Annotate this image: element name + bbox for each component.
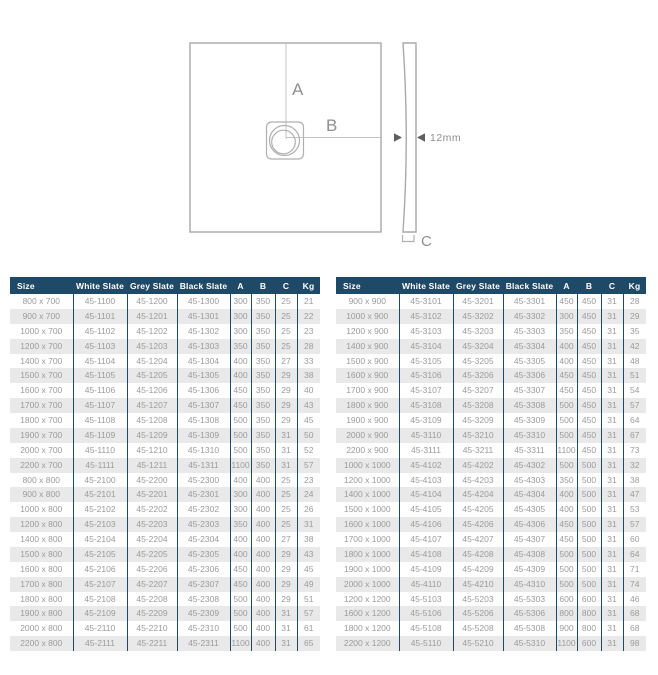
cell: 45-3302 bbox=[503, 309, 556, 324]
cell: 45-4207 bbox=[453, 532, 503, 547]
cell: 2000 x 1000 bbox=[336, 577, 399, 592]
cell: 1800 x 900 bbox=[336, 398, 399, 413]
cell: 500 bbox=[577, 517, 601, 532]
cell: 400 bbox=[556, 502, 577, 517]
cell: 1600 x 1200 bbox=[336, 606, 399, 621]
cell: 45-4203 bbox=[453, 473, 503, 488]
cell: 32 bbox=[623, 458, 646, 473]
cell: 45-1206 bbox=[127, 383, 177, 398]
cell: 45-5108 bbox=[399, 621, 453, 636]
cell: 45-1202 bbox=[127, 324, 177, 339]
cell: 68 bbox=[623, 606, 646, 621]
cell: 1600 x 700 bbox=[10, 383, 73, 398]
table-row: 900 x 80045-210145-220145-23013004002524 bbox=[10, 487, 320, 502]
table-row: 1600 x 90045-310645-320645-3306450450315… bbox=[336, 368, 646, 383]
cell: 450 bbox=[577, 383, 601, 398]
cell: 45-3110 bbox=[399, 428, 453, 443]
cell: 1600 x 800 bbox=[10, 562, 73, 577]
cell: 31 bbox=[275, 458, 297, 473]
cell: 25 bbox=[275, 517, 297, 532]
cell: 45-4105 bbox=[399, 502, 453, 517]
cell: 45-2203 bbox=[127, 517, 177, 532]
cell: 45-1108 bbox=[73, 413, 127, 428]
cell: 46 bbox=[623, 592, 646, 607]
cell: 45-3105 bbox=[399, 354, 453, 369]
cell: 45-1101 bbox=[73, 309, 127, 324]
cell: 450 bbox=[556, 383, 577, 398]
cell: 38 bbox=[623, 473, 646, 488]
cell: 74 bbox=[623, 577, 646, 592]
cell: 45-2100 bbox=[73, 473, 127, 488]
table-row: 1000 x 80045-210245-220245-2302300400252… bbox=[10, 502, 320, 517]
cell: 45-2111 bbox=[73, 636, 127, 651]
cell: 26 bbox=[297, 502, 320, 517]
cell: 45-3205 bbox=[453, 354, 503, 369]
cell: 400 bbox=[251, 577, 275, 592]
cell: 2200 x 900 bbox=[336, 443, 399, 458]
cell: 400 bbox=[230, 354, 251, 369]
cell: 45-1209 bbox=[127, 428, 177, 443]
cell: 29 bbox=[275, 577, 297, 592]
cell: 1100 bbox=[556, 443, 577, 458]
cell: 51 bbox=[297, 592, 320, 607]
cell: 450 bbox=[556, 517, 577, 532]
cell: 43 bbox=[297, 398, 320, 413]
cell: 45-4110 bbox=[399, 577, 453, 592]
cell: 1700 x 1000 bbox=[336, 532, 399, 547]
cell: 800 bbox=[577, 606, 601, 621]
cell: 45-1310 bbox=[177, 443, 230, 458]
cell: 31 bbox=[275, 606, 297, 621]
cell: 500 bbox=[577, 562, 601, 577]
cell: 1800 x 800 bbox=[10, 592, 73, 607]
cell: 22 bbox=[297, 309, 320, 324]
cell: 45-3109 bbox=[399, 413, 453, 428]
cell: 40 bbox=[297, 383, 320, 398]
cell: 45-2209 bbox=[127, 606, 177, 621]
cell: 60 bbox=[623, 532, 646, 547]
column-header: Kg bbox=[297, 277, 320, 294]
cell: 45-3202 bbox=[453, 309, 503, 324]
cell: 45-2303 bbox=[177, 517, 230, 532]
cell: 1200 x 1200 bbox=[336, 592, 399, 607]
cell: 45-3206 bbox=[453, 368, 503, 383]
cell: 350 bbox=[251, 354, 275, 369]
table-row: 1600 x 120045-510645-520645-530680080031… bbox=[336, 606, 646, 621]
cell: 45-1200 bbox=[127, 294, 177, 309]
cell: 45-1308 bbox=[177, 413, 230, 428]
cell: 45-3211 bbox=[453, 443, 503, 458]
cell: 350 bbox=[251, 443, 275, 458]
cell: 29 bbox=[275, 383, 297, 398]
cell: 350 bbox=[251, 398, 275, 413]
table-row: 1900 x 70045-110945-120945-1309500350315… bbox=[10, 428, 320, 443]
cell: 1900 x 900 bbox=[336, 413, 399, 428]
table-row: 1600 x 70045-110645-120645-1306450350294… bbox=[10, 383, 320, 398]
cell: 400 bbox=[251, 502, 275, 517]
cell: 350 bbox=[251, 368, 275, 383]
cell: 25 bbox=[275, 487, 297, 502]
cell: 45-2207 bbox=[127, 577, 177, 592]
cell: 31 bbox=[601, 547, 623, 562]
cell: 500 bbox=[556, 577, 577, 592]
cell: 45-2201 bbox=[127, 487, 177, 502]
cell: 450 bbox=[230, 398, 251, 413]
cell: 45-1311 bbox=[177, 458, 230, 473]
table-row: 2000 x 80045-211045-221045-2310500400316… bbox=[10, 621, 320, 636]
cell: 45-5110 bbox=[399, 636, 453, 651]
cell: 45-1205 bbox=[127, 368, 177, 383]
column-header: Size bbox=[10, 277, 73, 294]
cell: 45-2206 bbox=[127, 562, 177, 577]
cell: 45-3207 bbox=[453, 383, 503, 398]
cell: 45-5303 bbox=[503, 592, 556, 607]
column-header: Black Slate bbox=[503, 277, 556, 294]
cell: 45-2105 bbox=[73, 547, 127, 562]
column-header: Black Slate bbox=[177, 277, 230, 294]
cell: 45-2110 bbox=[73, 621, 127, 636]
cell: 1600 x 1000 bbox=[336, 517, 399, 532]
cell: 300 bbox=[230, 324, 251, 339]
cell: 45-1207 bbox=[127, 398, 177, 413]
cell: 45-4108 bbox=[399, 547, 453, 562]
cell: 45-1105 bbox=[73, 368, 127, 383]
cell: 29 bbox=[623, 309, 646, 324]
cell: 45-3210 bbox=[453, 428, 503, 443]
spec-table-left: SizeWhite SlateGrey SlateBlack SlateABCK… bbox=[10, 277, 320, 651]
cell: 25 bbox=[275, 309, 297, 324]
cell: 45-4205 bbox=[453, 502, 503, 517]
cell: 45-4107 bbox=[399, 532, 453, 547]
cell: 600 bbox=[556, 592, 577, 607]
table-row: 2200 x 80045-211145-221145-2311110040031… bbox=[10, 636, 320, 651]
cell: 1900 x 700 bbox=[10, 428, 73, 443]
cell: 500 bbox=[556, 428, 577, 443]
cell: 45-2101 bbox=[73, 487, 127, 502]
table-row: 1500 x 80045-210545-220545-2305400400294… bbox=[10, 547, 320, 562]
cell: 400 bbox=[251, 473, 275, 488]
cell: 31 bbox=[275, 428, 297, 443]
cell: 1500 x 700 bbox=[10, 368, 73, 383]
cell: 45-2102 bbox=[73, 502, 127, 517]
cell: 28 bbox=[297, 339, 320, 354]
cell: 500 bbox=[577, 532, 601, 547]
cell: 23 bbox=[297, 473, 320, 488]
cell: 25 bbox=[275, 294, 297, 309]
cell: 45-1106 bbox=[73, 383, 127, 398]
cell: 45-4309 bbox=[503, 562, 556, 577]
cell: 47 bbox=[623, 487, 646, 502]
cell: 31 bbox=[601, 606, 623, 621]
cell: 45-2304 bbox=[177, 532, 230, 547]
cell: 45-3111 bbox=[399, 443, 453, 458]
cell: 29 bbox=[275, 368, 297, 383]
header-row: SizeWhite SlateGrey SlateBlack SlateABCK… bbox=[336, 277, 646, 294]
cell: 1400 x 900 bbox=[336, 339, 399, 354]
cell: 45-2107 bbox=[73, 577, 127, 592]
cell: 45-1307 bbox=[177, 398, 230, 413]
cell: 45-5308 bbox=[503, 621, 556, 636]
cell: 25 bbox=[275, 324, 297, 339]
table-row: 1800 x 80045-210845-220845-2308500400295… bbox=[10, 592, 320, 607]
cell: 400 bbox=[230, 547, 251, 562]
table-row: 1800 x 100045-410845-420845-430850050031… bbox=[336, 547, 646, 562]
cell: 45-4304 bbox=[503, 487, 556, 502]
spec-table-right: SizeWhite SlateGrey SlateBlack SlateABCK… bbox=[336, 277, 646, 651]
table-row: 1700 x 100045-410745-420745-430745050031… bbox=[336, 532, 646, 547]
cell: 1400 x 1000 bbox=[336, 487, 399, 502]
cell: 1100 bbox=[230, 458, 251, 473]
cell: 57 bbox=[297, 606, 320, 621]
cell: 45-1309 bbox=[177, 428, 230, 443]
cell: 400 bbox=[251, 606, 275, 621]
cell: 45-3201 bbox=[453, 294, 503, 309]
table-row: 1200 x 120045-510345-520345-530360060031… bbox=[336, 592, 646, 607]
cell: 45-4103 bbox=[399, 473, 453, 488]
cell: 450 bbox=[577, 428, 601, 443]
c-dimension-bracket bbox=[403, 235, 415, 242]
column-header: White Slate bbox=[399, 277, 453, 294]
cell: 2000 x 700 bbox=[10, 443, 73, 458]
cell: 45-4303 bbox=[503, 473, 556, 488]
cell: 900 x 800 bbox=[10, 487, 73, 502]
cell: 2200 x 800 bbox=[10, 636, 73, 651]
cell: 400 bbox=[251, 532, 275, 547]
table-row: 1600 x 80045-210645-220645-2306450400294… bbox=[10, 562, 320, 577]
cell: 500 bbox=[577, 547, 601, 562]
label-b: B bbox=[326, 116, 337, 135]
cell: 51 bbox=[623, 368, 646, 383]
cell: 45-5103 bbox=[399, 592, 453, 607]
cell: 1000 x 800 bbox=[10, 502, 73, 517]
cell: 45-2200 bbox=[127, 473, 177, 488]
cell: 31 bbox=[601, 592, 623, 607]
cell: 48 bbox=[623, 354, 646, 369]
table-row: 2200 x 90045-311145-321145-3311110045031… bbox=[336, 443, 646, 458]
cell: 45-1305 bbox=[177, 368, 230, 383]
cell: 600 bbox=[577, 592, 601, 607]
cell: 45-5210 bbox=[453, 636, 503, 651]
cell: 65 bbox=[297, 636, 320, 651]
cell: 350 bbox=[230, 339, 251, 354]
cell: 450 bbox=[230, 562, 251, 577]
cell: 500 bbox=[230, 443, 251, 458]
cell: 45-5208 bbox=[453, 621, 503, 636]
cell: 350 bbox=[251, 309, 275, 324]
cell: 45-3101 bbox=[399, 294, 453, 309]
table-row: 1400 x 80045-210445-220445-2304400400273… bbox=[10, 532, 320, 547]
cell: 2000 x 800 bbox=[10, 621, 73, 636]
cell: 35 bbox=[623, 324, 646, 339]
cell: 400 bbox=[556, 354, 577, 369]
cell: 300 bbox=[230, 502, 251, 517]
column-header: A bbox=[556, 277, 577, 294]
cell: 45-3304 bbox=[503, 339, 556, 354]
label-c: C bbox=[421, 233, 432, 250]
cell: 73 bbox=[623, 443, 646, 458]
cell: 45-5306 bbox=[503, 606, 556, 621]
cell: 45-2300 bbox=[177, 473, 230, 488]
cell: 350 bbox=[556, 324, 577, 339]
cell: 45-1102 bbox=[73, 324, 127, 339]
cell: 1200 x 1000 bbox=[336, 473, 399, 488]
table-row: 2200 x 120045-511045-521045-531011006003… bbox=[336, 636, 646, 651]
cell: 31 bbox=[601, 368, 623, 383]
cell: 68 bbox=[623, 621, 646, 636]
cell: 45-4109 bbox=[399, 562, 453, 577]
cell: 450 bbox=[556, 532, 577, 547]
cell: 2200 x 1200 bbox=[336, 636, 399, 651]
cell: 31 bbox=[601, 532, 623, 547]
table-row: 1500 x 90045-310545-320545-3305400450314… bbox=[336, 354, 646, 369]
cell: 500 bbox=[577, 487, 601, 502]
column-header: White Slate bbox=[73, 277, 127, 294]
thickness-label: 12mm bbox=[430, 132, 461, 144]
cell: 45-1208 bbox=[127, 413, 177, 428]
cell: 900 bbox=[556, 621, 577, 636]
cell: 29 bbox=[275, 413, 297, 428]
cell: 800 bbox=[556, 606, 577, 621]
cell: 500 bbox=[230, 606, 251, 621]
cell: 45-2309 bbox=[177, 606, 230, 621]
cell: 54 bbox=[623, 383, 646, 398]
cell: 45-1111 bbox=[73, 458, 127, 473]
cell: 400 bbox=[556, 487, 577, 502]
cell: 500 bbox=[577, 473, 601, 488]
cell: 450 bbox=[556, 294, 577, 309]
label-a: A bbox=[292, 80, 304, 99]
cell: 45-3309 bbox=[503, 413, 556, 428]
cell: 45-4209 bbox=[453, 562, 503, 577]
cell: 45-2210 bbox=[127, 621, 177, 636]
cell: 24 bbox=[297, 487, 320, 502]
table-row: 900 x 70045-110145-120145-13013003502522 bbox=[10, 309, 320, 324]
cell: 300 bbox=[230, 309, 251, 324]
cell: 57 bbox=[623, 398, 646, 413]
cell: 45 bbox=[297, 562, 320, 577]
cell: 29 bbox=[275, 398, 297, 413]
cell: 45-1104 bbox=[73, 354, 127, 369]
cell: 350 bbox=[556, 473, 577, 488]
cell: 57 bbox=[623, 517, 646, 532]
cell: 29 bbox=[275, 592, 297, 607]
cell: 500 bbox=[230, 413, 251, 428]
cell: 45-2108 bbox=[73, 592, 127, 607]
cell: 45-3308 bbox=[503, 398, 556, 413]
column-header: A bbox=[230, 277, 251, 294]
cell: 45-4208 bbox=[453, 547, 503, 562]
table-row: 1900 x 90045-310945-320945-3309500450316… bbox=[336, 413, 646, 428]
cell: 45-1100 bbox=[73, 294, 127, 309]
cell: 31 bbox=[601, 443, 623, 458]
cell: 500 bbox=[556, 398, 577, 413]
cell: 450 bbox=[577, 413, 601, 428]
cell: 45-2104 bbox=[73, 532, 127, 547]
cell: 300 bbox=[230, 487, 251, 502]
drain-icon bbox=[267, 122, 304, 159]
cell: 1500 x 800 bbox=[10, 547, 73, 562]
table-row: 1800 x 90045-310845-320845-3308500450315… bbox=[336, 398, 646, 413]
table-row: 2000 x 90045-311045-321045-3310500450316… bbox=[336, 428, 646, 443]
cell: 98 bbox=[623, 636, 646, 651]
cell: 450 bbox=[577, 324, 601, 339]
cell: 400 bbox=[251, 592, 275, 607]
cell: 45-1109 bbox=[73, 428, 127, 443]
cell: 67 bbox=[623, 428, 646, 443]
cell: 45-1300 bbox=[177, 294, 230, 309]
cell: 45-3108 bbox=[399, 398, 453, 413]
cell: 45-2302 bbox=[177, 502, 230, 517]
cell: 45-2307 bbox=[177, 577, 230, 592]
cell: 1200 x 700 bbox=[10, 339, 73, 354]
cell: 31 bbox=[275, 443, 297, 458]
cell: 500 bbox=[577, 577, 601, 592]
cell: 45-3208 bbox=[453, 398, 503, 413]
cell: 45-4204 bbox=[453, 487, 503, 502]
cell: 45-3310 bbox=[503, 428, 556, 443]
cell: 31 bbox=[601, 502, 623, 517]
table-row: 1400 x 70045-110445-120445-1304400350273… bbox=[10, 354, 320, 369]
cell: 45-4210 bbox=[453, 577, 503, 592]
cell: 400 bbox=[251, 621, 275, 636]
cell: 350 bbox=[251, 383, 275, 398]
cell: 45-3204 bbox=[453, 339, 503, 354]
cell: 45-1303 bbox=[177, 339, 230, 354]
table-row: 800 x 80045-210045-220045-23004004002523 bbox=[10, 473, 320, 488]
cell: 500 bbox=[556, 547, 577, 562]
cell: 31 bbox=[601, 324, 623, 339]
column-header: C bbox=[601, 277, 623, 294]
table-row: 1000 x 90045-310245-320245-3302300450312… bbox=[336, 309, 646, 324]
cell: 31 bbox=[601, 413, 623, 428]
cell: 45-3305 bbox=[503, 354, 556, 369]
cell: 45-1210 bbox=[127, 443, 177, 458]
cell: 31 bbox=[275, 621, 297, 636]
cell: 45-4307 bbox=[503, 532, 556, 547]
cell: 45-3303 bbox=[503, 324, 556, 339]
cell: 31 bbox=[601, 577, 623, 592]
cell: 43 bbox=[297, 547, 320, 562]
cell: 45-2106 bbox=[73, 562, 127, 577]
cell: 45-2109 bbox=[73, 606, 127, 621]
table-row: 1000 x 70045-110245-120245-1302300350252… bbox=[10, 324, 320, 339]
cell: 31 bbox=[601, 487, 623, 502]
cell: 400 bbox=[230, 368, 251, 383]
cell: 1200 x 900 bbox=[336, 324, 399, 339]
cell: 45-3102 bbox=[399, 309, 453, 324]
cell: 800 bbox=[577, 621, 601, 636]
cell: 31 bbox=[601, 562, 623, 577]
cell: 45-1110 bbox=[73, 443, 127, 458]
cell: 45-3106 bbox=[399, 368, 453, 383]
table-row: 800 x 70045-110045-120045-13003003502521 bbox=[10, 294, 320, 309]
cell: 31 bbox=[601, 517, 623, 532]
cell: 45-4102 bbox=[399, 458, 453, 473]
cell: 450 bbox=[577, 339, 601, 354]
cell: 45-4306 bbox=[503, 517, 556, 532]
table-row: 1900 x 100045-410945-420945-430950050031… bbox=[336, 562, 646, 577]
cell: 45-3203 bbox=[453, 324, 503, 339]
cell: 1500 x 900 bbox=[336, 354, 399, 369]
dimension-diagram: A B 12mm C bbox=[0, 0, 658, 270]
cell: 900 x 900 bbox=[336, 294, 399, 309]
cell: 45-4206 bbox=[453, 517, 503, 532]
cell: 25 bbox=[275, 339, 297, 354]
cell: 1500 x 1000 bbox=[336, 502, 399, 517]
table-row: 1200 x 70045-110345-120345-1303350350252… bbox=[10, 339, 320, 354]
cell: 45-1211 bbox=[127, 458, 177, 473]
cell: 29 bbox=[275, 562, 297, 577]
